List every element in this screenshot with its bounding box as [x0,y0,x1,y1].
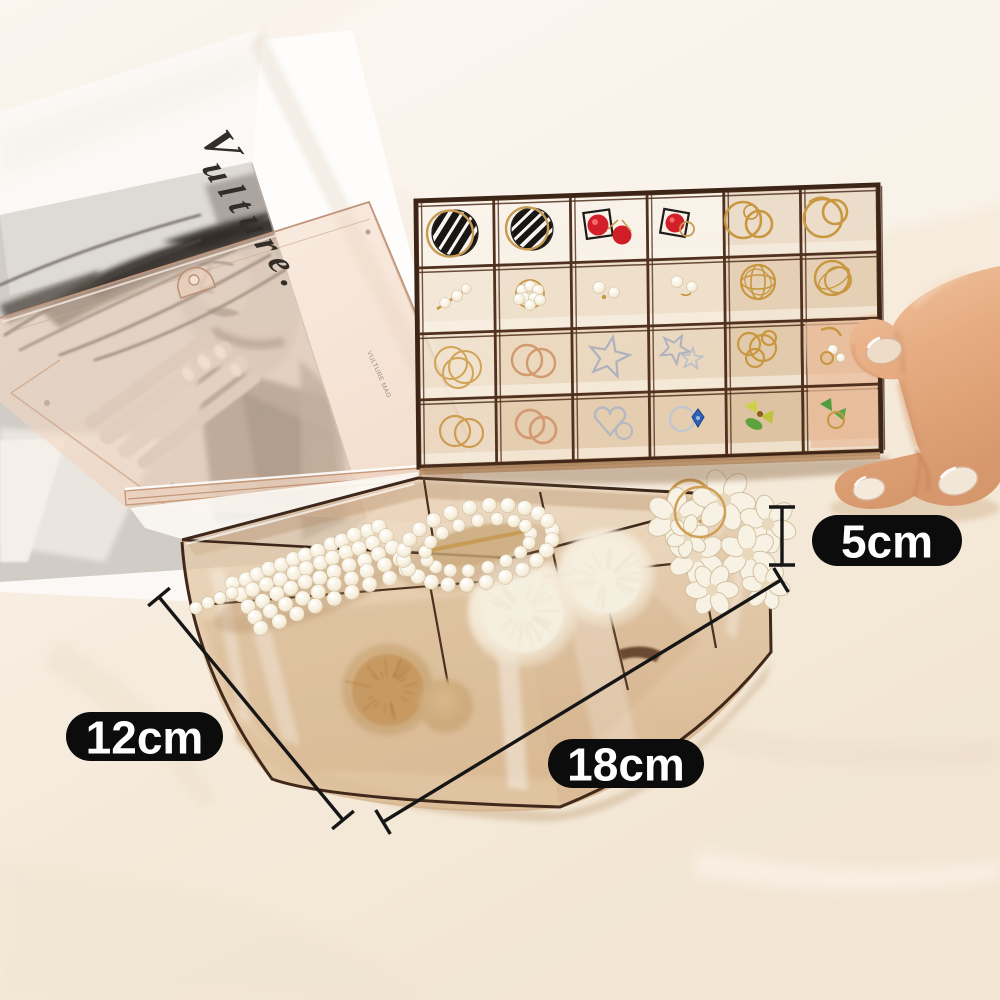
svg-text:12cm: 12cm [86,712,204,764]
svg-text:5cm: 5cm [841,516,933,568]
svg-text:18cm: 18cm [567,739,685,791]
